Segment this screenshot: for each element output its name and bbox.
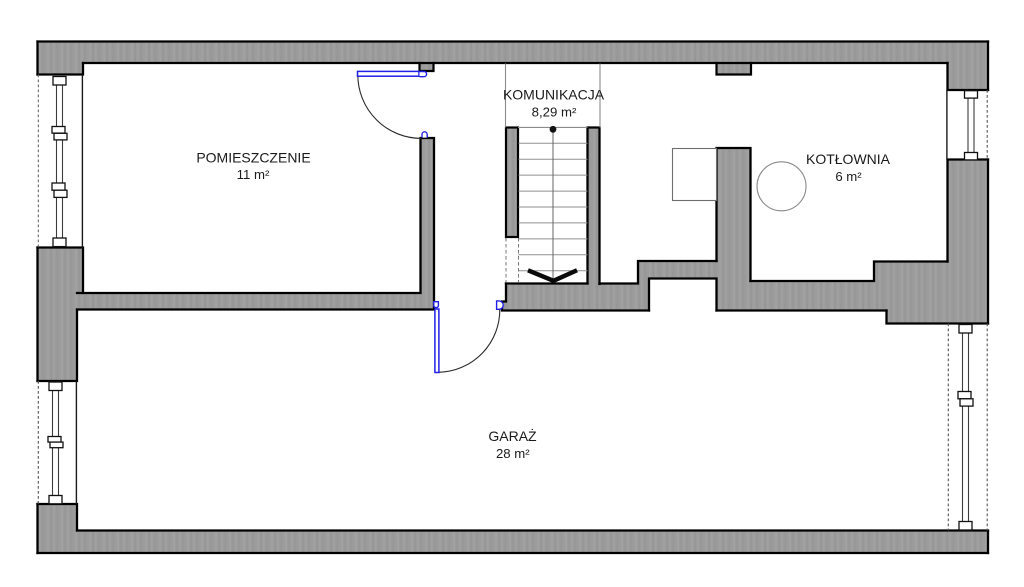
svg-text:GARAŻ: GARAŻ <box>488 427 537 444</box>
svg-text:28 m²: 28 m² <box>496 446 530 461</box>
svg-text:POMIESZCZENIE: POMIESZCZENIE <box>196 149 310 165</box>
svg-text:KOTŁOWNIA: KOTŁOWNIA <box>806 151 891 167</box>
svg-text:KOMUNIKACJA: KOMUNIKACJA <box>503 86 605 102</box>
svg-text:11 m²: 11 m² <box>237 167 270 182</box>
svg-text:6 m²: 6 m² <box>835 169 862 184</box>
svg-text:8,29 m²: 8,29 m² <box>532 104 577 119</box>
